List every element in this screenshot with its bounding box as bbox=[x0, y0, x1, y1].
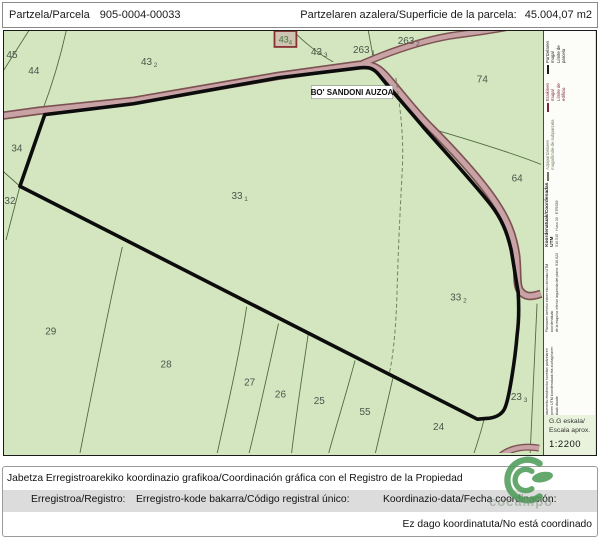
header-bar: Partzela/Parcela905-0004-00033 Partzelar… bbox=[2, 2, 598, 28]
parcel-label: 27 bbox=[244, 377, 256, 388]
legend-item-building: Eraikinen muga/Límite de edificio bbox=[545, 81, 566, 112]
coordination-status: Ez dago koordinatuta/No está coordinado bbox=[403, 519, 592, 530]
legend-coords: Koordenatuak/Coordenadas UTM 510.515 · H… bbox=[545, 189, 559, 247]
scale-label-2: Escala aprox. bbox=[549, 427, 595, 436]
building-line-swatch bbox=[547, 103, 549, 112]
parcel-label: 64 bbox=[512, 173, 524, 184]
cadastral-map-page: Partzela/Parcela905-0004-00033 Partzelar… bbox=[0, 0, 600, 539]
svg-text:BO' SANDONI AUZOA: BO' SANDONI AUZOA bbox=[311, 88, 394, 97]
road-name-label: BO' SANDONI AUZOA bbox=[311, 86, 394, 99]
registry-code-label: Erregistro-kode bakarra/Código registral… bbox=[136, 494, 349, 505]
area-value: 45.004,07 m2 bbox=[525, 9, 592, 21]
scale-box: G.G eskala/ Escala aprox. 1:2200 bbox=[544, 415, 595, 455]
parcel-line-swatch bbox=[547, 65, 549, 74]
legend-rotated-block: Dokumentu elektroniko honetan partzelare… bbox=[545, 34, 591, 418]
parcel-label: 55 bbox=[359, 407, 371, 418]
legend-item-subparcel: Azpipartzelaren muga/límite de subparcel… bbox=[545, 119, 556, 181]
parcel-label: 28 bbox=[161, 359, 173, 370]
subparcel-line-swatch bbox=[547, 172, 549, 181]
parcel-area-group: Partzelaren azalera/Superficie de la par… bbox=[300, 9, 592, 21]
parcel-label: 34 bbox=[11, 143, 23, 154]
registry-label: Erregistroa/Registro: bbox=[31, 494, 125, 505]
parcel-label: 45 bbox=[6, 50, 18, 61]
area-label: Partzelaren azalera/Superficie de la par… bbox=[300, 9, 516, 21]
legend-note-2: Dokumentu elektroniko honetan partzelare… bbox=[545, 338, 559, 418]
parcel-label: 74 bbox=[477, 75, 489, 86]
parcel-label: 44 bbox=[28, 66, 40, 77]
parcel-label: 26 bbox=[275, 389, 287, 400]
legend-column: Dokumentu elektroniko honetan partzelare… bbox=[543, 31, 595, 455]
coordination-status-row: Ez dago koordinatuta/No está coordinado bbox=[3, 512, 597, 536]
parcel-label: 25 bbox=[314, 396, 326, 407]
scale-label-1: G.G eskala/ bbox=[549, 418, 595, 427]
parcel-label: Partzela/Parcela bbox=[9, 9, 90, 21]
parcel-id-group: Partzela/Parcela905-0004-00033 bbox=[9, 9, 180, 21]
map-frame: 434 BO' SANDONI AUZOA 454443 243 3263 12… bbox=[3, 30, 597, 456]
watermark-text: cocampo bbox=[489, 494, 553, 509]
parcel-label: 29 bbox=[45, 327, 57, 338]
building-43: 434 bbox=[274, 31, 296, 47]
parcel-label: 24 bbox=[433, 422, 445, 433]
cadastral-map: 434 BO' SANDONI AUZOA 454443 243 3263 12… bbox=[4, 31, 543, 453]
parcel-label: 32 bbox=[4, 196, 16, 207]
map-background bbox=[4, 31, 543, 453]
legend-note-1: Planoaren beheko ezkerreko izkinako UTM … bbox=[545, 253, 559, 333]
coordination-title: Jabetza Erregistroarekiko koordinazio gr… bbox=[7, 473, 463, 484]
scale-value: 1:2200 bbox=[549, 439, 595, 451]
legend-item-parcel: Partzelaren muga/Límite de parcela bbox=[545, 41, 566, 74]
parcel-id: 905-0004-00033 bbox=[100, 9, 181, 21]
